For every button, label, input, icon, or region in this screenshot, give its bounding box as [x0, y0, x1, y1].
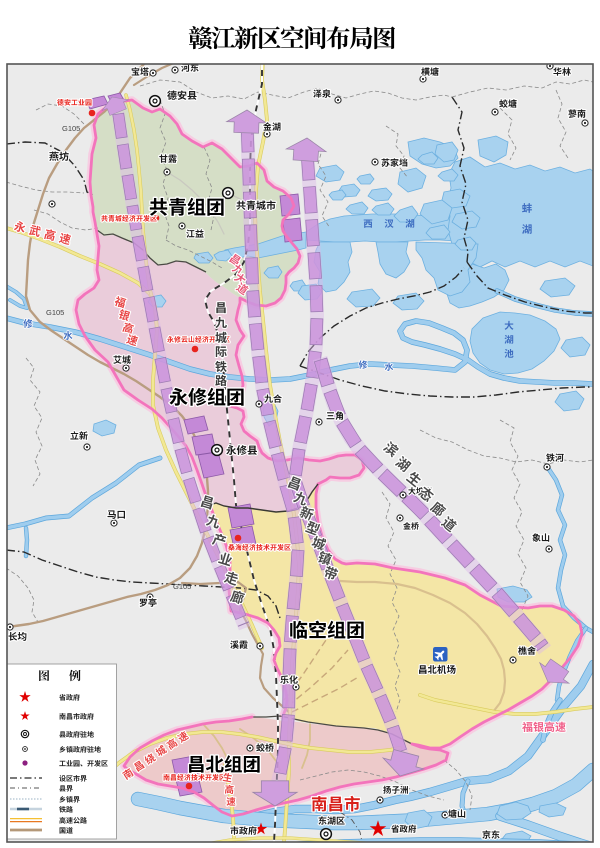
svg-text:G105: G105 [173, 582, 191, 591]
svg-text:G105: G105 [62, 124, 80, 133]
svg-text:G105: G105 [46, 308, 64, 317]
